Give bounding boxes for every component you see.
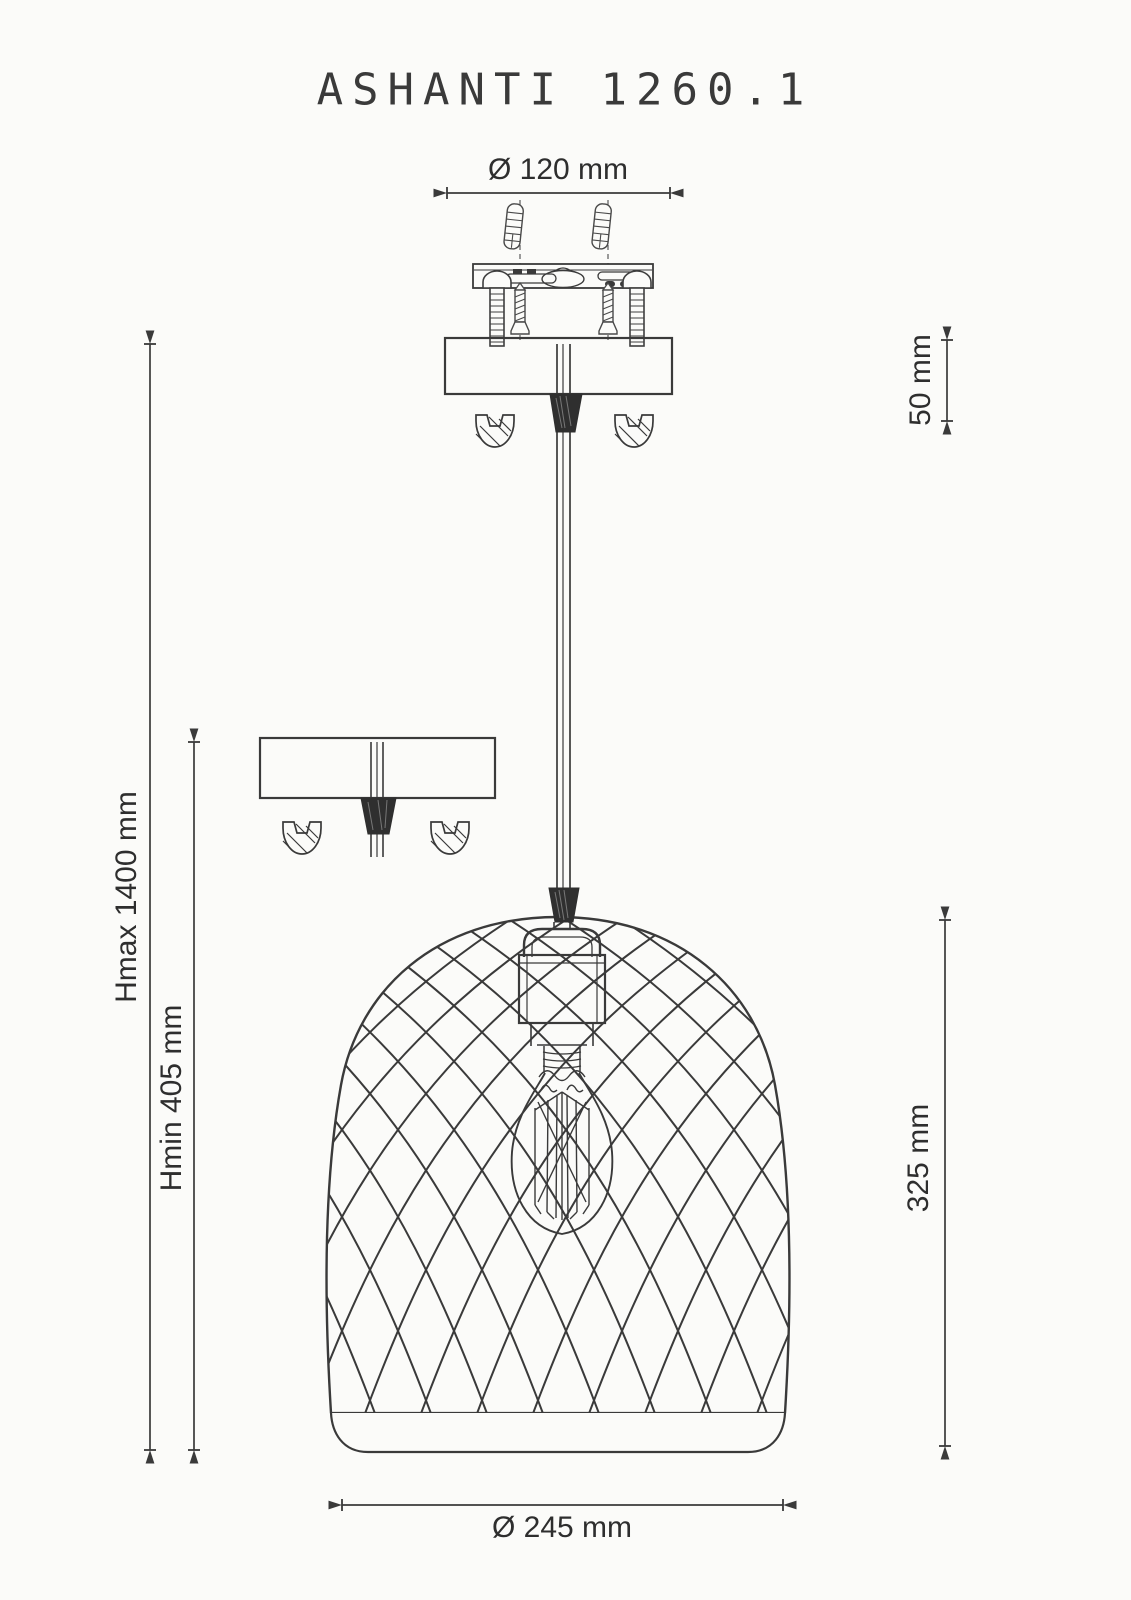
dome-nut-side-left bbox=[283, 822, 321, 854]
cable-gland-canopy bbox=[550, 394, 582, 432]
light-bulb bbox=[512, 1046, 613, 1234]
shade-base-ring bbox=[331, 1413, 785, 1452]
drawing-title: ASHANTI 1260.1 bbox=[317, 65, 814, 116]
bulb-filament bbox=[535, 1085, 589, 1220]
canopy-side-view bbox=[260, 738, 495, 857]
dim-label-shade-diameter: Ø 245 mm bbox=[492, 1511, 632, 1545]
drawing-canvas bbox=[0, 0, 1131, 1600]
mounting-bolt-left bbox=[483, 271, 511, 346]
technical-drawing-pendant-lamp: ASHANTI 1260.1 Ø 120 mm 50 mm Hmax 1400 … bbox=[0, 0, 1131, 1600]
wall-anchor-left bbox=[503, 203, 524, 249]
dome-nut-front-right bbox=[615, 415, 653, 447]
dim-label-min-height: Hmin 405 mm bbox=[155, 1005, 189, 1192]
dim-label-shade-height: 325 mm bbox=[902, 1104, 936, 1212]
mounting-screw-left bbox=[511, 283, 529, 334]
dim-label-mount-diameter: Ø 120 mm bbox=[488, 153, 628, 187]
mounting-screw-right bbox=[599, 283, 617, 334]
shade-outline bbox=[327, 917, 790, 1413]
cable-gland-side bbox=[361, 798, 396, 834]
dim-label-max-height: Hmax 1400 mm bbox=[110, 791, 144, 1003]
dome-nut-front-left bbox=[476, 415, 514, 447]
dome-nut-side-right bbox=[431, 822, 469, 854]
wall-anchor-right bbox=[591, 203, 612, 249]
dim-label-canopy-height: 50 mm bbox=[904, 334, 938, 426]
mounting-bolt-right bbox=[623, 271, 651, 346]
